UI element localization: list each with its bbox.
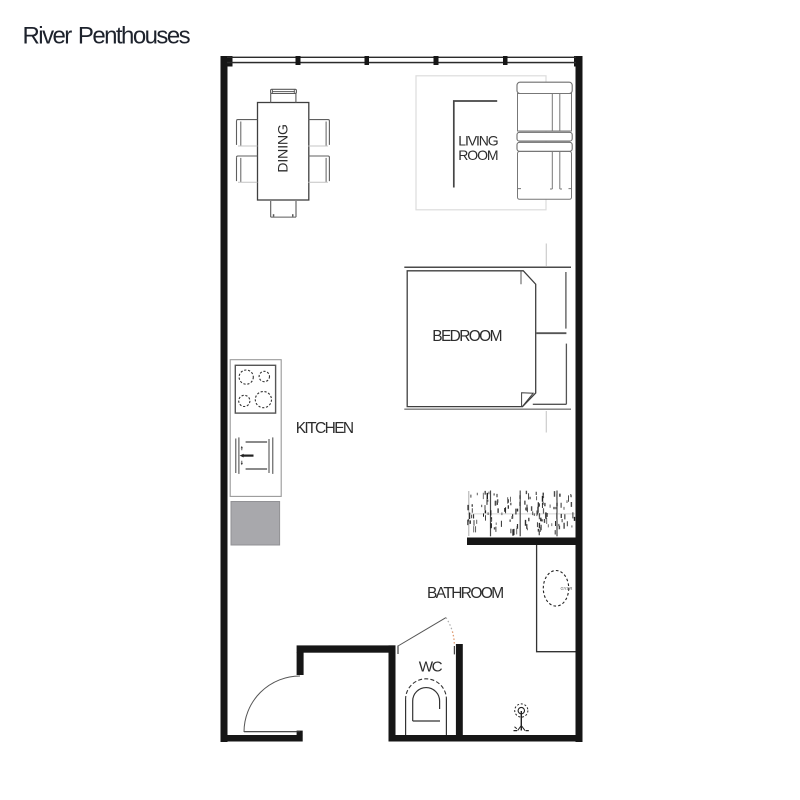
svg-text:GYSR: GYSR <box>561 586 573 591</box>
svg-text:BATHROOM: BATHROOM <box>427 585 503 602</box>
svg-text:River Penthouses: River Penthouses <box>23 23 191 50</box>
svg-text:KITCHEN: KITCHEN <box>296 420 353 437</box>
svg-text:WC: WC <box>419 659 443 676</box>
svg-text:ROOM: ROOM <box>458 147 498 163</box>
svg-text:DINING: DINING <box>275 124 291 172</box>
svg-text:BEDROOM: BEDROOM <box>432 328 501 345</box>
